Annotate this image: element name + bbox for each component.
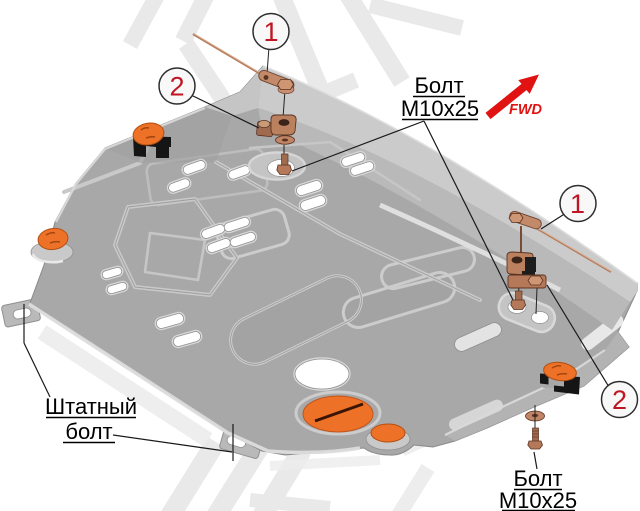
svg-text:М10х25: М10х25: [499, 488, 577, 511]
svg-text:1: 1: [570, 189, 585, 219]
svg-text:болт: болт: [65, 419, 112, 444]
svg-text:2: 2: [169, 72, 184, 102]
svg-text:Болт: Болт: [414, 73, 463, 98]
svg-text:2: 2: [612, 385, 627, 415]
svg-text:М10х25: М10х25: [401, 96, 479, 121]
svg-text:FWD: FWD: [509, 102, 543, 118]
svg-text:1: 1: [263, 17, 278, 47]
svg-text:Штатный: Штатный: [45, 394, 137, 419]
